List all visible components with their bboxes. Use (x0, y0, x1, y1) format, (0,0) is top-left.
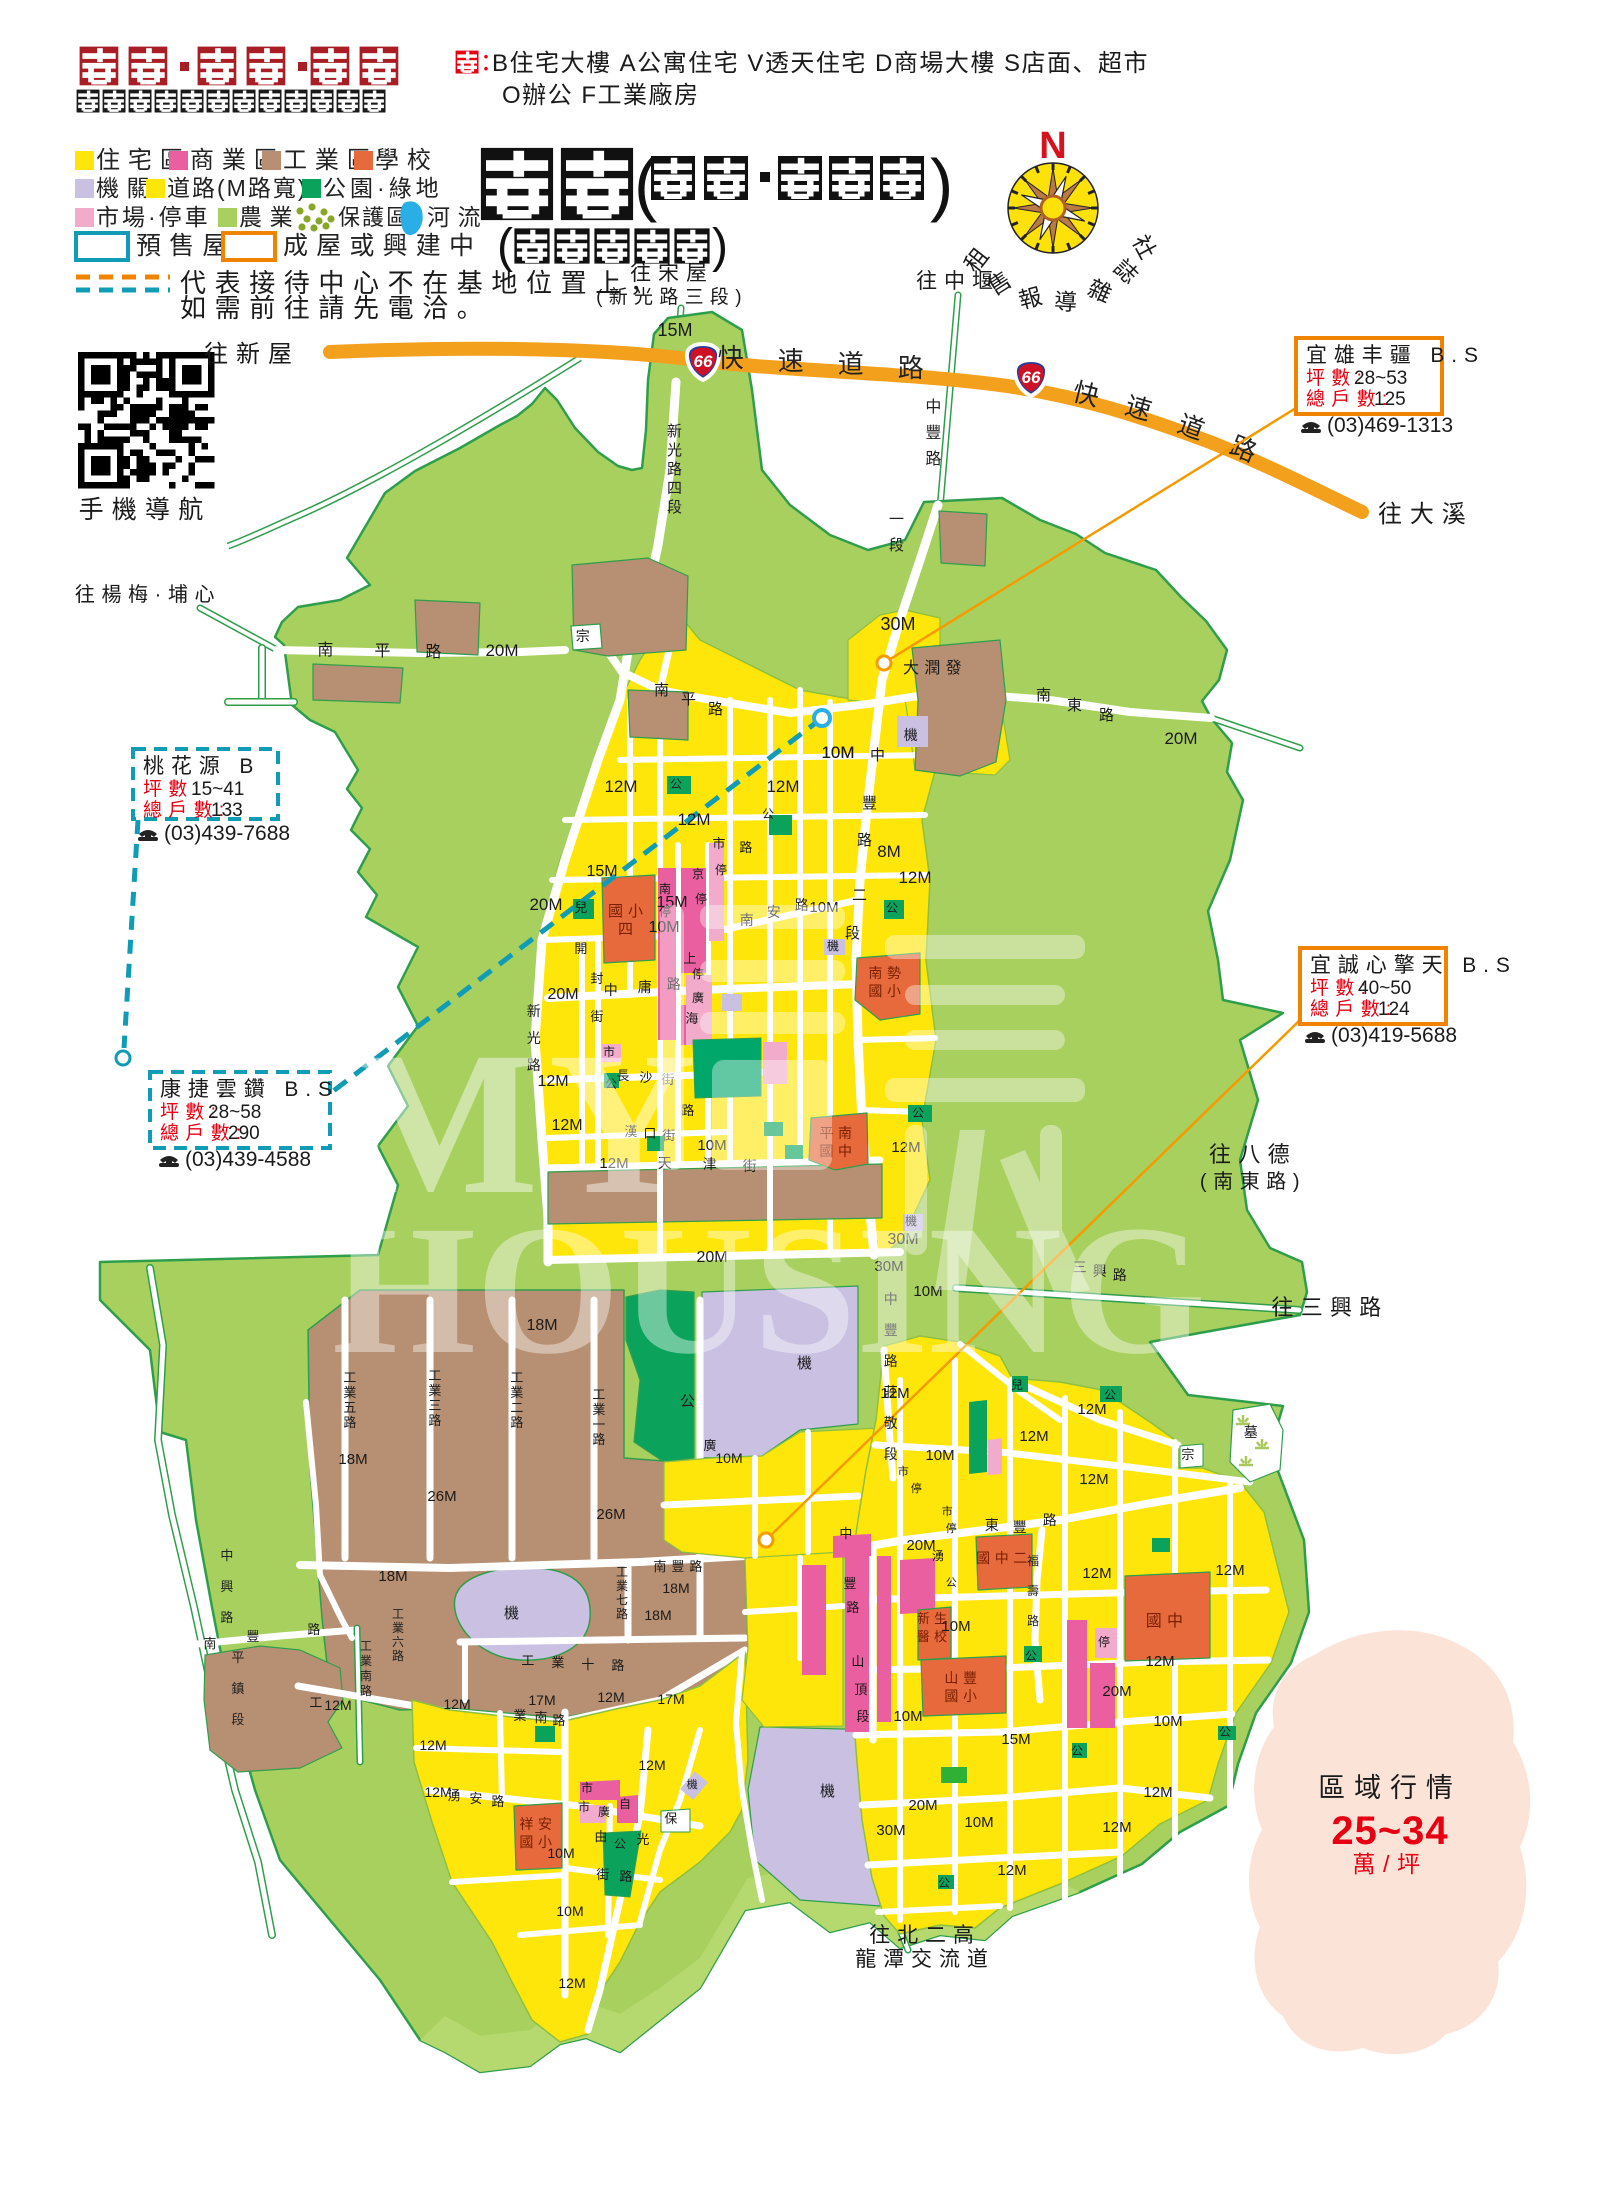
svg-text:B住宅大樓 A公寓住宅 V透天住宅 D商場大樓 S店面、超市: B住宅大樓 A公寓住宅 V透天住宅 D商場大樓 S店面、超市 (492, 50, 1149, 77)
svg-text:12M: 12M (1215, 1562, 1244, 1579)
svg-text:市: 市 (712, 836, 729, 851)
svg-text:南: 南 (654, 682, 674, 699)
svg-text:18M: 18M (338, 1451, 367, 1468)
svg-text:15M: 15M (586, 863, 617, 880)
svg-text:保: 保 (664, 1811, 681, 1826)
svg-text:(03)469-1313: (03)469-1313 (1327, 414, 1453, 437)
svg-text:市: 市 (581, 1780, 597, 1795)
svg-text:28~53: 28~53 (1354, 368, 1407, 389)
svg-text:8M: 8M (877, 842, 901, 861)
svg-text:10M: 10M (821, 743, 854, 762)
svg-text:南: 南 (1036, 687, 1056, 704)
svg-text:公: 公 (1071, 1744, 1087, 1758)
svg-text:區域行情: 區域行情 (1318, 1773, 1462, 1803)
svg-text:國小: 國小 (944, 1688, 981, 1704)
svg-text:路: 路 (425, 643, 446, 661)
svg-text:南: 南 (203, 1636, 220, 1651)
svg-text:導: 導 (1053, 288, 1085, 316)
svg-text:二: 二 (510, 1400, 527, 1415)
svg-text:速: 速 (778, 346, 813, 376)
svg-text:133: 133 (211, 800, 243, 821)
svg-text:中: 中 (220, 1548, 237, 1563)
svg-text:宗: 宗 (1181, 1447, 1198, 1462)
svg-text:往八德: 往八德 (1209, 1142, 1297, 1167)
svg-text:10M: 10M (964, 1814, 993, 1831)
svg-text:南: 南 (659, 881, 675, 896)
svg-text:六: 六 (392, 1635, 408, 1649)
svg-text:業: 業 (616, 1579, 632, 1593)
svg-text:大潤發: 大潤發 (903, 659, 967, 677)
svg-text:市場·停車: 市場·停車 (96, 204, 211, 230)
svg-text:京: 京 (692, 867, 708, 881)
svg-text:手機導航: 手機導航 (79, 496, 212, 524)
svg-text:26M: 26M (427, 1488, 456, 1505)
svg-text:10M: 10M (547, 1845, 574, 1861)
svg-text:廣: 廣 (692, 991, 708, 1005)
svg-text:路: 路 (616, 1606, 632, 1621)
svg-text:路: 路 (611, 1658, 628, 1673)
svg-text:290: 290 (228, 1123, 260, 1144)
svg-text:路: 路 (1099, 707, 1119, 724)
svg-text:路: 路 (220, 1610, 237, 1625)
svg-text:12M: 12M (1102, 1819, 1131, 1836)
svg-text:路: 路 (428, 1413, 445, 1428)
svg-text:(: ( (497, 220, 513, 273)
svg-text:公: 公 (1219, 1725, 1235, 1739)
svg-text:南: 南 (534, 1710, 551, 1725)
svg-text:山: 山 (851, 1654, 868, 1669)
svg-text:宜雄丰疆 B.S: 宜雄丰疆 B.S (1306, 344, 1485, 367)
svg-text:(03)419-5688: (03)419-5688 (1331, 1024, 1457, 1047)
svg-text:17M: 17M (528, 1692, 555, 1708)
svg-text:15M: 15M (1001, 1731, 1030, 1748)
svg-text:平: 平 (231, 1650, 248, 1665)
svg-text:段: 段 (667, 499, 687, 516)
svg-text:保護區: 保護區 (338, 205, 410, 230)
svg-text:20M: 20M (529, 895, 562, 914)
svg-text:12M: 12M (677, 810, 710, 829)
svg-text:12M: 12M (558, 1975, 585, 1991)
svg-text:路: 路 (360, 1683, 376, 1698)
svg-text:壽: 壽 (1027, 1583, 1043, 1598)
svg-text:庸: 庸 (638, 979, 657, 995)
svg-text:路: 路 (552, 1713, 569, 1728)
svg-text:公: 公 (938, 1876, 954, 1890)
svg-text:市: 市 (578, 1799, 594, 1814)
svg-text:國中: 國中 (1146, 1612, 1189, 1630)
svg-text:封: 封 (590, 971, 607, 986)
svg-text:頂: 頂 (854, 1682, 871, 1697)
svg-text:路: 路 (392, 1648, 408, 1663)
svg-text:國中二: 國中二 (976, 1550, 1032, 1566)
svg-text:段: 段 (231, 1712, 248, 1727)
svg-text:20M: 20M (908, 1797, 937, 1814)
svg-text:工: 工 (616, 1565, 632, 1579)
svg-text:工: 工 (521, 1653, 538, 1668)
svg-text:路: 路 (1027, 1613, 1043, 1628)
svg-text:路: 路 (846, 1600, 863, 1615)
svg-text:如需前往請先電洽。: 如需前往請先電洽。 (180, 293, 491, 323)
svg-text:段: 段 (884, 1446, 903, 1462)
svg-text:10M: 10M (893, 1708, 922, 1725)
svg-text:公: 公 (1025, 1649, 1041, 1663)
svg-text:往楊梅·埔心: 往楊梅·埔心 (75, 583, 221, 606)
svg-text:山豐: 山豐 (944, 1670, 981, 1686)
svg-text:四: 四 (618, 921, 638, 938)
svg-text:12M: 12M (324, 1697, 351, 1713)
svg-text:12M: 12M (638, 1757, 665, 1773)
svg-text:業: 業 (513, 1708, 530, 1723)
svg-text:平: 平 (374, 643, 395, 660)
svg-text:南: 南 (317, 641, 338, 659)
svg-text:豐: 豐 (925, 424, 946, 442)
svg-text:機: 機 (687, 1777, 702, 1791)
svg-text:40~50: 40~50 (1358, 978, 1411, 999)
svg-text:路: 路 (857, 832, 877, 849)
svg-text:中: 中 (925, 398, 946, 416)
svg-text:20M: 20M (1102, 1683, 1131, 1700)
svg-text:18M: 18M (644, 1607, 671, 1623)
svg-text:業: 業 (551, 1655, 568, 1670)
svg-text:路: 路 (491, 1794, 508, 1809)
svg-text:往三興路: 往三興路 (1271, 1295, 1388, 1320)
svg-text:工: 工 (392, 1607, 408, 1621)
svg-text:光: 光 (636, 1832, 653, 1847)
svg-text:段: 段 (845, 925, 865, 942)
svg-text:學校: 學校 (375, 147, 439, 174)
svg-text:東: 東 (1067, 697, 1087, 714)
svg-text:廣: 廣 (598, 1805, 614, 1819)
svg-text:上: 上 (683, 951, 700, 966)
svg-text:宜誠心擎天 B.S: 宜誠心擎天 B.S (1310, 954, 1517, 977)
svg-text:12M: 12M (898, 868, 931, 887)
svg-text:二: 二 (852, 887, 872, 904)
svg-text:公: 公 (912, 1106, 928, 1120)
svg-text:新: 新 (667, 423, 687, 440)
svg-text:豐: 豐 (862, 795, 882, 812)
svg-text:公: 公 (670, 777, 686, 791)
svg-text:往大溪: 往大溪 (1378, 501, 1474, 528)
svg-text:五: 五 (343, 1400, 360, 1415)
svg-text:公: 公 (762, 807, 778, 821)
svg-text:安: 安 (469, 1791, 486, 1806)
svg-text:20M: 20M (547, 986, 578, 1003)
svg-text:湧: 湧 (447, 1788, 464, 1803)
svg-text:30M: 30M (876, 1822, 905, 1839)
svg-text:業: 業 (392, 1621, 408, 1635)
svg-text:鎮: 鎮 (231, 1681, 248, 1696)
svg-text:12M: 12M (443, 1696, 470, 1712)
svg-text:豐: 豐 (671, 1559, 688, 1574)
svg-text:18M: 18M (378, 1568, 407, 1585)
svg-text:路: 路 (898, 353, 933, 383)
svg-text:自: 自 (619, 1797, 635, 1811)
svg-text:路: 路 (708, 701, 728, 718)
svg-text:(南東路): (南東路) (1200, 1170, 1306, 1193)
svg-text:農業: 農業 (239, 204, 300, 230)
svg-text:開: 開 (574, 941, 591, 956)
svg-text:康捷雲鑽 B.S: 康捷雲鑽 B.S (160, 1078, 339, 1101)
svg-text:東: 東 (985, 1517, 1004, 1533)
svg-text:光: 光 (667, 442, 687, 459)
svg-text:敬: 敬 (884, 1415, 903, 1431)
svg-text:豐: 豐 (1013, 1519, 1032, 1535)
svg-text:10M: 10M (556, 1903, 583, 1919)
svg-text:桃花源 B: 桃花源 B (143, 755, 260, 778)
svg-text:國小: 國小 (868, 983, 905, 999)
svg-text:12M: 12M (1082, 1565, 1111, 1582)
svg-text:): ) (930, 145, 953, 223)
svg-text:業: 業 (592, 1402, 609, 1417)
svg-text:墓: 墓 (1244, 1424, 1263, 1440)
svg-text:一: 一 (889, 511, 909, 528)
svg-text:12M: 12M (766, 777, 799, 796)
svg-text:15~41: 15~41 (191, 779, 244, 800)
svg-text:12M: 12M (597, 1689, 624, 1705)
svg-text:南勢: 南勢 (868, 965, 905, 981)
svg-text:四: 四 (667, 480, 687, 497)
svg-text:國小: 國小 (608, 903, 648, 920)
svg-text:宗: 宗 (576, 628, 595, 644)
svg-text:10M: 10M (925, 1447, 954, 1464)
svg-text:七: 七 (616, 1593, 632, 1607)
svg-text:豐: 豐 (246, 1629, 263, 1644)
svg-text:十: 十 (581, 1657, 598, 1672)
svg-text:停: 停 (1098, 1634, 1114, 1649)
svg-text:豐: 豐 (843, 1576, 860, 1591)
svg-text:10M: 10M (715, 1450, 742, 1466)
svg-text:124: 124 (1378, 999, 1410, 1020)
svg-text:66: 66 (1022, 368, 1041, 387)
svg-text:路: 路 (1043, 1512, 1062, 1528)
svg-text:機: 機 (904, 727, 923, 743)
svg-text:由: 由 (594, 1829, 611, 1844)
svg-text:萬/坪: 萬/坪 (1352, 1851, 1427, 1877)
svg-text:公: 公 (946, 1577, 961, 1589)
svg-text:往新屋: 往新屋 (204, 341, 300, 368)
svg-text:停: 停 (715, 862, 731, 877)
svg-text:市: 市 (898, 1464, 913, 1478)
svg-text:20M: 20M (1164, 729, 1197, 748)
svg-text:機: 機 (820, 1783, 840, 1800)
svg-text:18M: 18M (662, 1580, 689, 1596)
svg-text:12M: 12M (1145, 1653, 1174, 1670)
svg-text:(03)439-7688: (03)439-7688 (164, 822, 290, 845)
svg-text:業: 業 (360, 1654, 376, 1668)
svg-text:路: 路 (689, 1559, 706, 1574)
svg-text:中: 中 (870, 747, 890, 764)
svg-text:路: 路 (592, 1432, 609, 1447)
svg-text:往北二高: 往北二高 (869, 1924, 981, 1947)
svg-text:路: 路 (667, 461, 687, 478)
svg-text:湧: 湧 (932, 1549, 948, 1563)
svg-text:公園·綠地: 公園·綠地 (323, 175, 443, 201)
svg-text:停: 停 (946, 1521, 961, 1535)
svg-text:125: 125 (1374, 389, 1406, 410)
svg-text:26M: 26M (596, 1506, 625, 1523)
svg-text:往宋屋: 往宋屋 (630, 262, 714, 285)
svg-text:道路(M路寬): 道路(M路寬) (167, 175, 307, 201)
svg-text:(新光路三段): (新光路三段) (596, 286, 748, 308)
svg-text:公: 公 (614, 1837, 630, 1851)
svg-text:機: 機 (504, 1605, 524, 1622)
svg-text:工: 工 (360, 1639, 376, 1653)
svg-text:N: N (1039, 125, 1066, 167)
svg-text:三: 三 (428, 1398, 445, 1413)
svg-text:66: 66 (694, 352, 713, 371)
svg-text:15M: 15M (657, 320, 692, 340)
svg-text:往中堰: 往中堰 (916, 270, 1000, 293)
svg-text:一: 一 (592, 1417, 609, 1432)
svg-text:兒: 兒 (574, 900, 591, 915)
svg-text:): ) (712, 220, 728, 273)
svg-text:段: 段 (856, 1709, 873, 1724)
svg-text:河流: 河流 (427, 204, 488, 230)
svg-text:龍潭交流道: 龍潭交流道 (855, 1948, 995, 1971)
svg-text:28~58: 28~58 (208, 1102, 261, 1123)
svg-text:12M: 12M (1019, 1428, 1048, 1445)
svg-text:中: 中 (839, 1526, 856, 1541)
svg-text:公: 公 (886, 901, 902, 915)
svg-text:30M: 30M (880, 614, 915, 634)
svg-text:機: 機 (827, 938, 843, 953)
svg-text:12M: 12M (1079, 1471, 1108, 1488)
svg-text:路: 路 (510, 1415, 527, 1430)
svg-text:南: 南 (653, 1559, 670, 1574)
svg-text:市: 市 (942, 1504, 957, 1518)
svg-text:公: 公 (680, 1393, 700, 1410)
svg-text:12M: 12M (1077, 1401, 1106, 1418)
svg-text:20M: 20M (485, 641, 518, 660)
svg-text:停: 停 (911, 1481, 926, 1495)
svg-text:17M: 17M (657, 1691, 684, 1707)
svg-text:快: 快 (718, 343, 753, 373)
svg-text:路: 路 (619, 1869, 636, 1884)
svg-text:12M: 12M (419, 1737, 446, 1753)
svg-text:25~34: 25~34 (1331, 1809, 1448, 1853)
svg-text:平: 平 (681, 691, 701, 708)
svg-text:10M: 10M (1153, 1713, 1182, 1730)
svg-text:12M: 12M (604, 777, 637, 796)
svg-text:祥安: 祥安 (519, 1816, 556, 1832)
svg-text:道: 道 (838, 349, 873, 379)
svg-text:成屋或興建中: 成屋或興建中 (283, 232, 482, 260)
svg-text:(03)439-4588: (03)439-4588 (185, 1148, 311, 1171)
svg-text:段: 段 (889, 537, 909, 554)
svg-text:南: 南 (360, 1668, 376, 1683)
svg-text:12M: 12M (997, 1862, 1026, 1879)
svg-text:停: 停 (695, 891, 711, 906)
svg-text:路: 路 (343, 1415, 360, 1430)
svg-text:街: 街 (596, 1867, 613, 1882)
svg-text:10M: 10M (941, 1618, 970, 1635)
svg-text:興: 興 (220, 1579, 237, 1594)
svg-text:12M: 12M (1143, 1784, 1172, 1801)
svg-text:路: 路 (739, 840, 756, 855)
svg-text:預售屋: 預售屋 (136, 232, 236, 260)
svg-text:路: 路 (925, 450, 946, 468)
svg-text:路: 路 (307, 1622, 324, 1637)
svg-text:O辦公 F工業廠房: O辦公 F工業廠房 (502, 82, 700, 109)
